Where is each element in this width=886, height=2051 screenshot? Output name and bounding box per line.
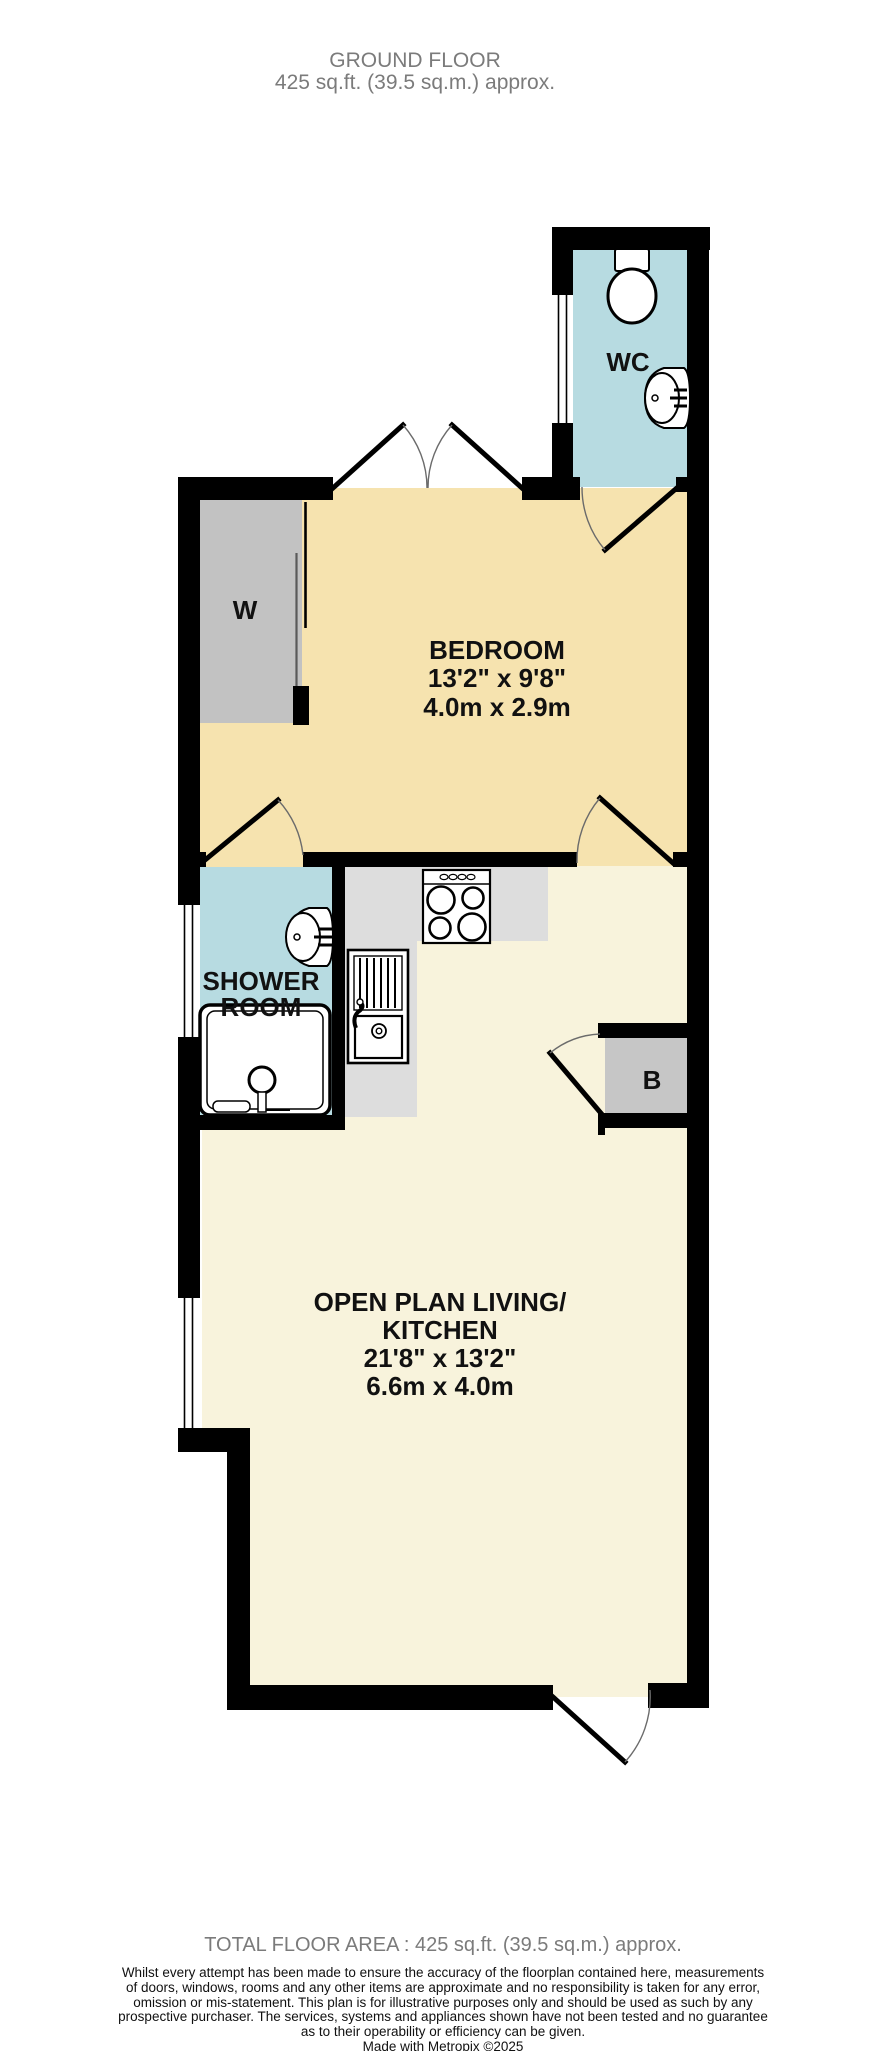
wc-label: WC (606, 347, 650, 377)
wc-window (552, 295, 573, 423)
wall (227, 1685, 553, 1710)
shower-basin-icon (286, 908, 333, 966)
wall (687, 227, 709, 1708)
bedroom-metric-dims: 4.0m x 2.9m (423, 692, 570, 722)
disclaimer-line: Whilst every attempt has been made to en… (0, 1966, 886, 1981)
living-room-window (178, 1298, 200, 1428)
wardrobe-label: W (233, 595, 258, 625)
disclaimer-line: as to their operability or efficiency ca… (0, 2025, 886, 2040)
bedroom-french-door-left (333, 425, 427, 488)
toilet-icon (608, 249, 656, 323)
total-floor-area: TOTAL FLOOR AREA : 425 sq.ft. (39.5 sq.m… (0, 1934, 886, 1957)
wall (552, 250, 573, 298)
boiler-label: B (643, 1065, 662, 1095)
wall (178, 477, 333, 500)
wall (178, 1115, 345, 1130)
wall (332, 867, 345, 1130)
entrance-door (553, 1690, 650, 1762)
shower-room-window (178, 905, 200, 1037)
cooker-icon (423, 870, 490, 943)
kitchen-sink-icon (348, 950, 408, 1063)
metropix-credit: Made with Metropix ©2025 (0, 2040, 886, 2051)
wall (227, 1428, 250, 1710)
wall (522, 477, 580, 500)
wall (673, 852, 687, 867)
wall (293, 686, 309, 725)
living-label-line2: KITCHEN (382, 1315, 498, 1345)
living-label-line1: OPEN PLAN LIVING/ (314, 1287, 567, 1317)
wall (552, 227, 710, 250)
floorplan-page: GROUND FLOOR 425 sq.ft. (39.5 sq.m.) app… (0, 0, 886, 2051)
bedroom-label: BEDROOM (429, 635, 565, 665)
wall (598, 1023, 687, 1038)
wall (605, 1113, 687, 1128)
disclaimer: Whilst every attempt has been made to en… (0, 1966, 886, 2051)
wall (303, 852, 577, 867)
disclaimer-line: omission or mis-statement. This plan is … (0, 1996, 886, 2011)
disclaimer-line: prospective purchaser. The services, sys… (0, 2010, 886, 2025)
living-metric-dims: 6.6m x 4.0m (366, 1371, 513, 1401)
wall (648, 1683, 709, 1708)
bedroom-imperial-dims: 13'2" x 9'8" (428, 663, 566, 693)
living-imperial-dims: 21'8" x 13'2" (364, 1343, 517, 1373)
wc-basin-icon (645, 368, 690, 428)
disclaimer-line: of doors, windows, rooms and any other i… (0, 1981, 886, 1996)
bedroom-french-door-right (428, 425, 522, 488)
shower-room-label-line2: ROOM (221, 992, 302, 1022)
floorplan-drawing: WC W BEDROOM 13'2" x 9'8" 4.0m x 2.9m SH… (0, 0, 886, 2051)
